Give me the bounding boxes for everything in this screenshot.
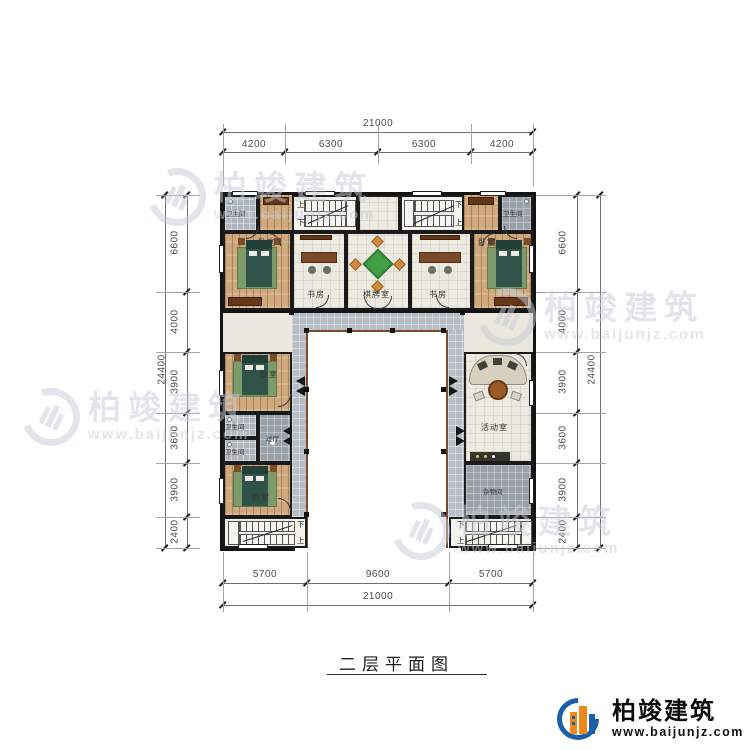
dim-line — [223, 583, 533, 584]
brand-logo-icon — [556, 696, 603, 743]
dim-extension-line — [536, 413, 606, 414]
dim-line — [600, 195, 601, 548]
brand-name: 柏竣建筑 — [612, 700, 744, 724]
drawing-title: 二层平面图 — [339, 650, 454, 675]
dim-left-seg: 4000 — [170, 300, 181, 344]
dim-extension-line — [536, 517, 606, 518]
dim-extension-line — [536, 548, 606, 549]
brand-url: www.baijunjz.com — [612, 726, 744, 739]
dim-extension-line — [156, 195, 200, 196]
logo-window — [572, 722, 575, 725]
floor-plan-page: 柏竣建筑www.baijunjz.com 柏竣建筑www.baijunjz.co… — [0, 0, 750, 750]
logo-window — [572, 716, 575, 719]
dim-extension-line — [536, 195, 606, 196]
dim-extension-line — [533, 552, 534, 612]
dim-top-seg: 4200 — [477, 139, 527, 150]
dim-right-seg: 3900 — [558, 468, 569, 512]
dim-extension-line — [223, 552, 224, 612]
dim-left-seg: 3600 — [170, 416, 181, 460]
dim-extension-line — [307, 552, 308, 612]
dim-extension-line — [536, 463, 606, 464]
dim-top-seg: 4200 — [229, 139, 279, 150]
dim-right-seg: 3900 — [558, 360, 569, 404]
brand-text: 柏竣建筑 www.baijunjz.com — [612, 700, 744, 739]
brand-logo: 柏竣建筑 www.baijunjz.com — [556, 696, 744, 743]
dim-extension-line — [378, 124, 379, 164]
dim-bottom-seg: 9600 — [353, 569, 403, 580]
dim-left-seg: 3900 — [170, 360, 181, 404]
dim-top-seg: 6300 — [306, 139, 356, 150]
title-underline — [327, 674, 487, 675]
dim-extension-line — [449, 552, 450, 612]
dim-extension-line — [285, 124, 286, 164]
logo-swoosh — [548, 689, 607, 748]
dim-right-total: 24400 — [587, 340, 598, 400]
dim-extension-line — [156, 517, 200, 518]
dim-extension-line — [536, 292, 606, 293]
dim-line — [577, 195, 578, 548]
dimension-annotations: 21000 4200 6300 6300 4200 5700 9600 5700… — [0, 0, 750, 750]
dim-left-seg: 6600 — [170, 221, 181, 265]
dim-extension-line — [156, 292, 200, 293]
dim-left-seg: 3900 — [170, 468, 181, 512]
dim-extension-line — [156, 352, 200, 353]
dim-extension-line — [536, 352, 606, 353]
dim-extension-line — [156, 463, 200, 464]
dim-top-seg: 6300 — [399, 139, 449, 150]
dim-right-seg: 3600 — [558, 416, 569, 460]
dim-extension-line — [533, 124, 534, 186]
logo-building-bar — [589, 714, 595, 734]
dim-extension-line — [156, 548, 200, 549]
dim-line — [165, 195, 166, 548]
dim-bottom-seg: 5700 — [466, 569, 516, 580]
dim-bottom-total: 21000 — [348, 591, 408, 602]
dim-line — [187, 195, 188, 548]
dim-line — [223, 605, 533, 606]
dim-right-seg: 6600 — [558, 221, 569, 265]
logo-building-bar — [579, 706, 587, 734]
dim-extension-line — [156, 413, 200, 414]
dim-extension-line — [223, 124, 224, 186]
dim-extension-line — [471, 124, 472, 164]
dim-right-seg: 4000 — [558, 300, 569, 344]
dim-bottom-seg: 5700 — [240, 569, 290, 580]
